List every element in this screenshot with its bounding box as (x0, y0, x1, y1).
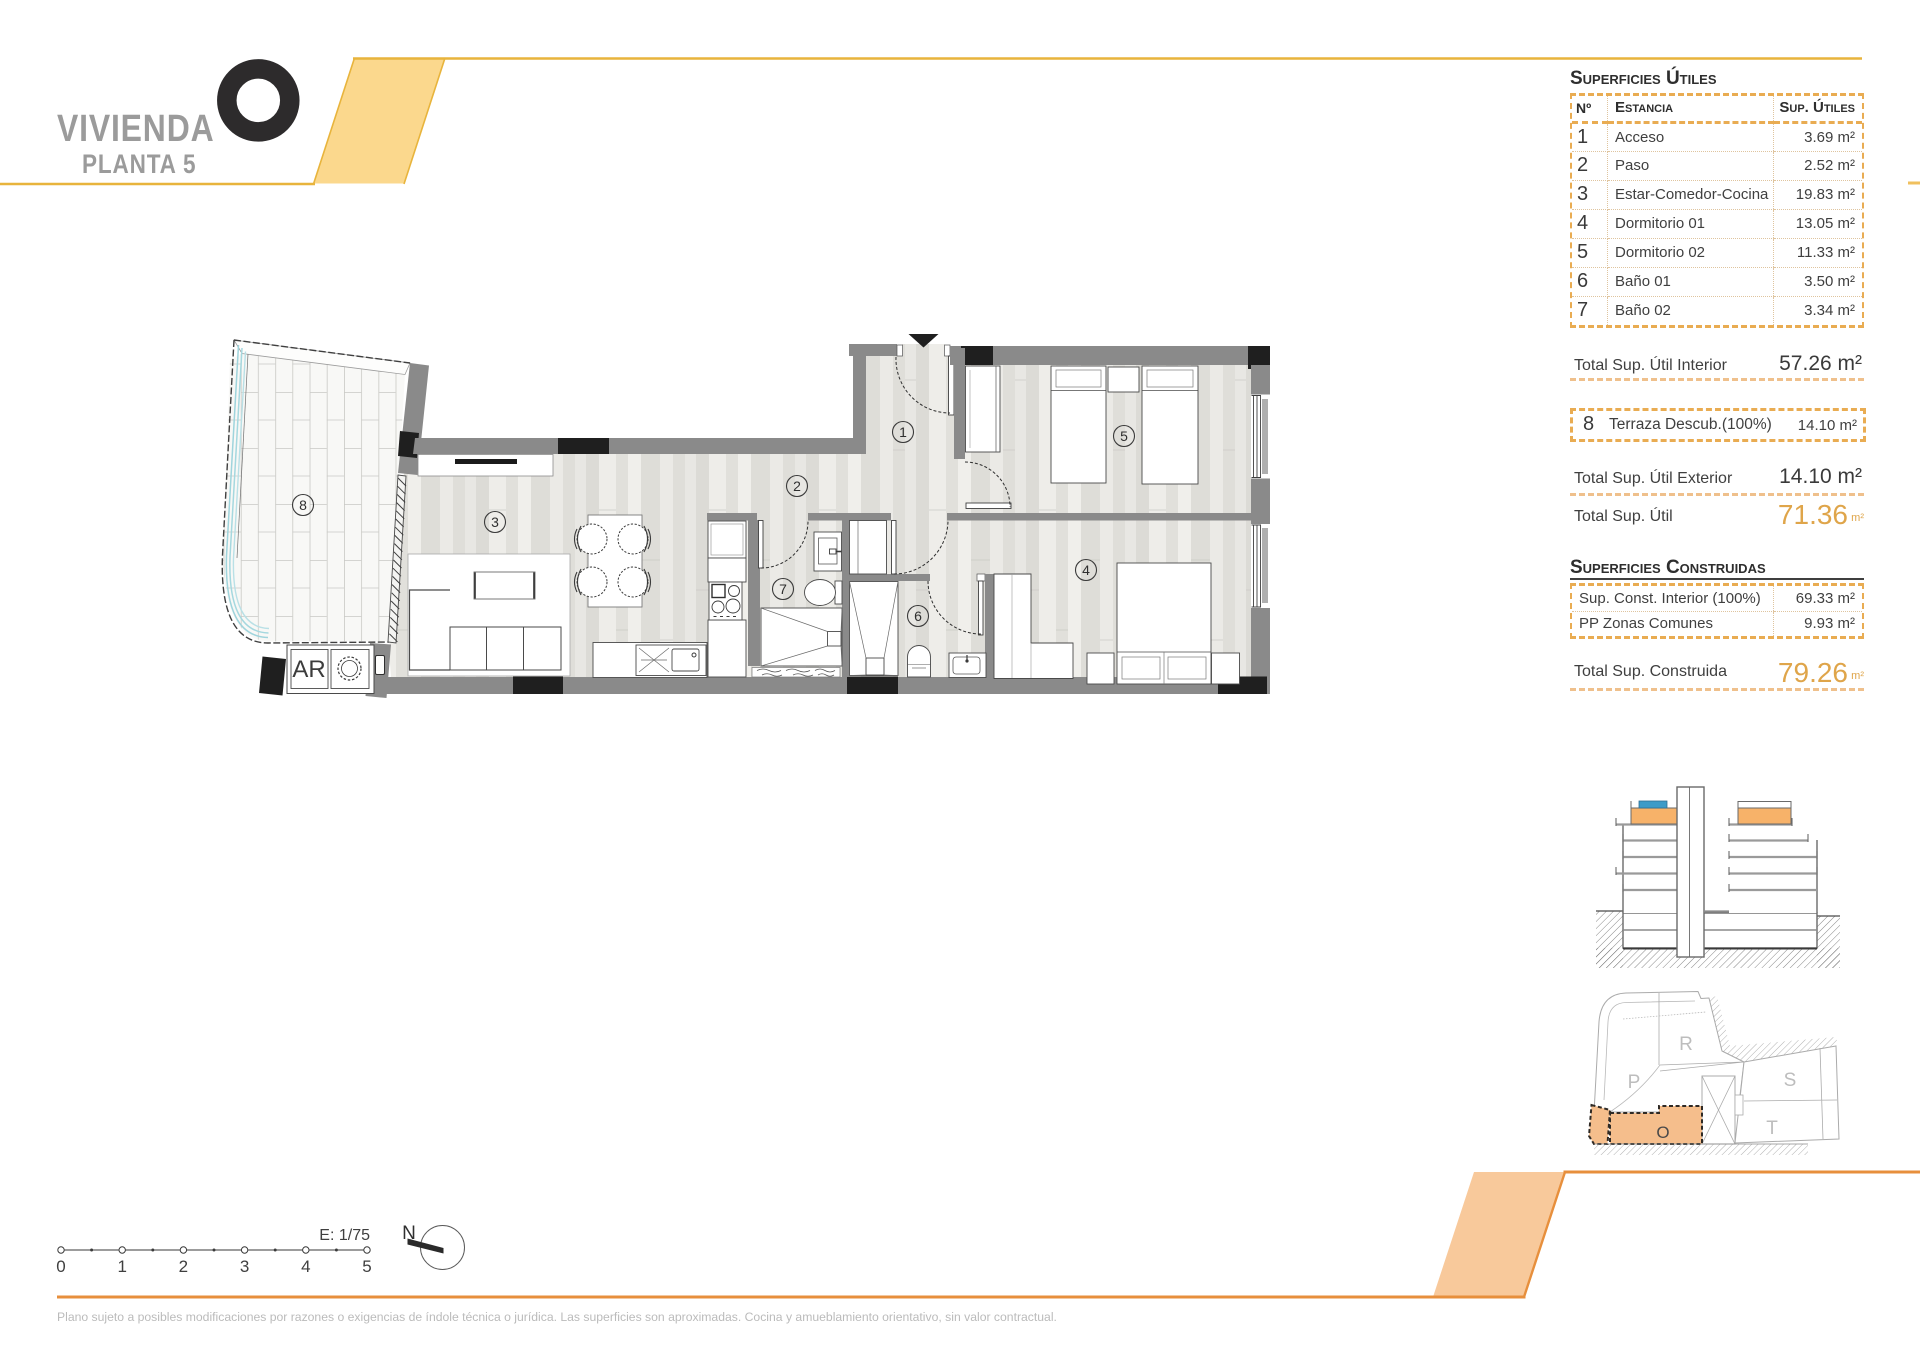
svg-text:3: 3 (240, 1257, 249, 1276)
svg-text:R: R (1679, 1034, 1693, 1055)
svg-text:S: S (1784, 1070, 1797, 1091)
svg-text:2: 2 (179, 1257, 188, 1276)
svg-text:AR: AR (292, 656, 325, 683)
svg-text:P: P (1628, 1072, 1641, 1093)
svg-text:E: 1/75: E: 1/75 (319, 1227, 370, 1244)
svg-text:8: 8 (299, 497, 307, 513)
svg-text:1: 1 (899, 424, 907, 440)
svg-text:5: 5 (1120, 428, 1128, 444)
svg-text:1: 1 (117, 1257, 126, 1276)
svg-text:5: 5 (362, 1257, 371, 1276)
svg-text:4: 4 (1082, 562, 1090, 578)
svg-text:T: T (1766, 1118, 1778, 1139)
svg-text:0: 0 (56, 1257, 65, 1276)
svg-text:4: 4 (301, 1257, 310, 1276)
svg-text:7: 7 (779, 581, 787, 597)
svg-text:6: 6 (914, 608, 922, 624)
svg-text:3: 3 (491, 514, 499, 530)
svg-text:O: O (1656, 1123, 1669, 1142)
svg-text:2: 2 (793, 478, 801, 494)
